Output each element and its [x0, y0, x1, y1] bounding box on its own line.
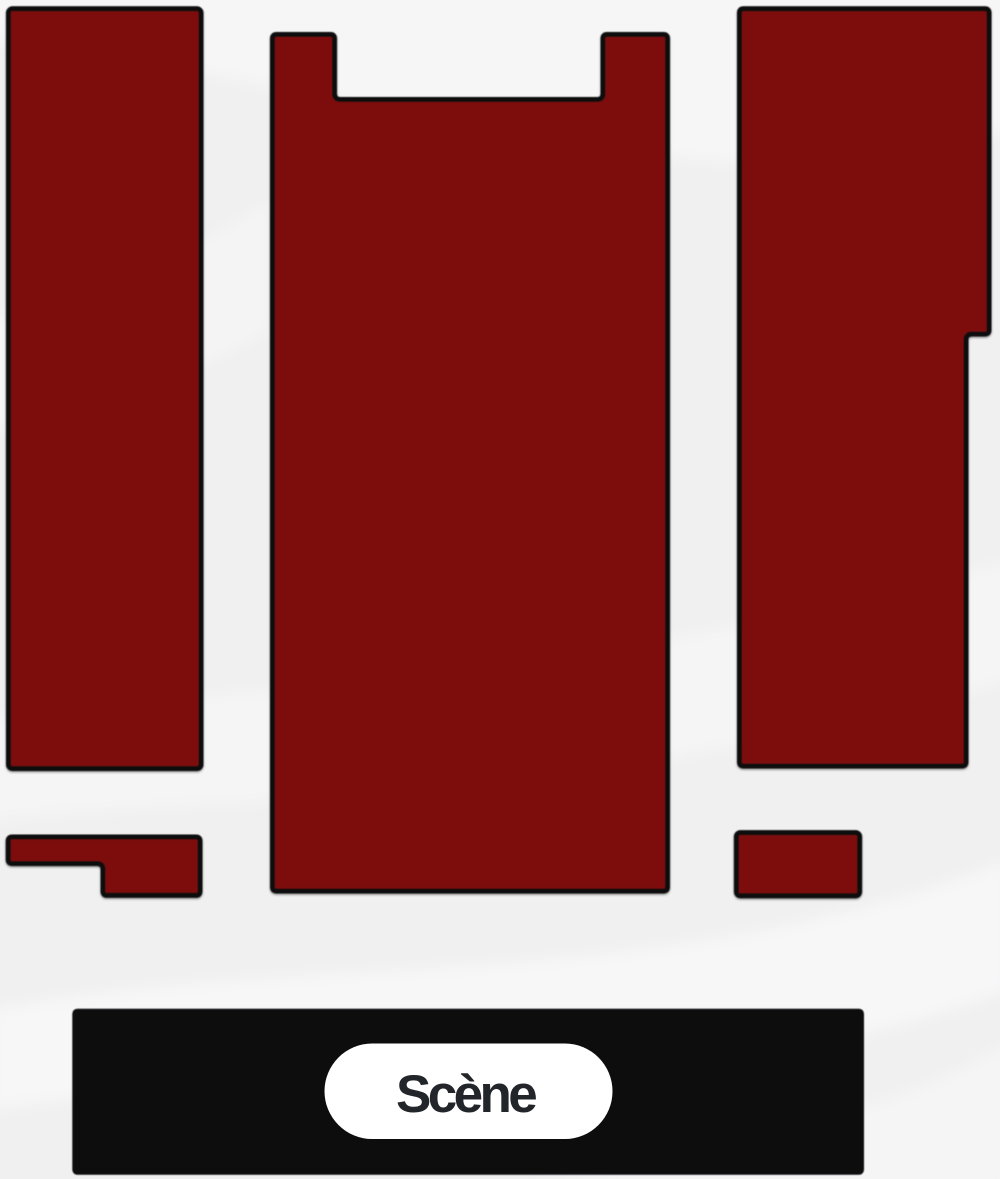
svg-text:Scène: Scène — [396, 1065, 536, 1124]
